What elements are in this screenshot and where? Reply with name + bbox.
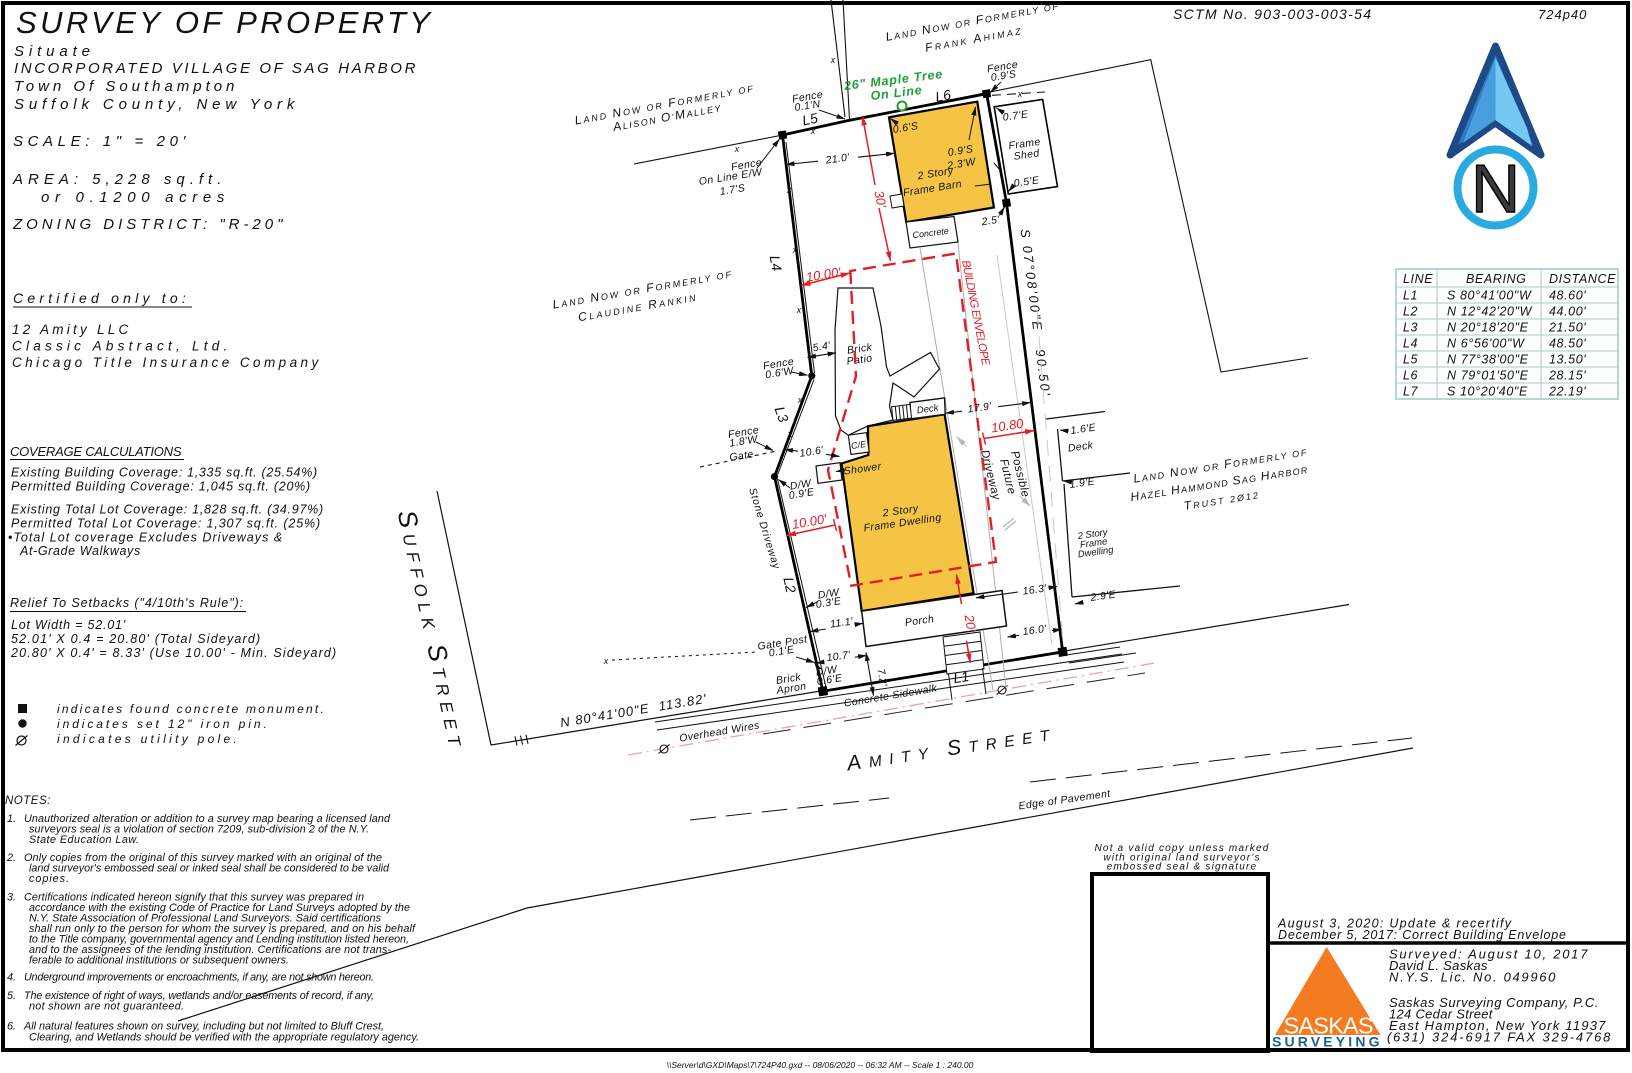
svg-text:x: x (734, 144, 740, 154)
svg-text:22.19': 22.19' (1548, 385, 1586, 399)
svg-text:N 77°38'00"E: N 77°38'00"E (1447, 353, 1529, 367)
svg-text:L6: L6 (934, 86, 953, 105)
svg-text:not shown are not guaranteed.: not shown are not guaranteed. (29, 1001, 184, 1013)
svg-text:N 79°01'50"E: N 79°01'50"E (1447, 369, 1529, 383)
svg-text:48.50': 48.50' (1549, 337, 1586, 351)
svg-text:State Education Law.: State Education Law. (29, 834, 139, 846)
svg-text:11.1': 11.1' (829, 615, 854, 630)
svg-text:3.: 3. (7, 892, 16, 904)
svg-text:•Total Lot coverage Excludes D: •Total Lot coverage Excludes Driveways & (8, 531, 283, 545)
svg-text:Town Of Southampton: Town Of Southampton (14, 78, 237, 95)
svg-text:At-Grade Walkways: At-Grade Walkways (19, 544, 141, 558)
svg-text:20': 20' (961, 613, 979, 634)
svg-text:SUFFOLK STREET: SUFFOLK STREET (392, 507, 474, 753)
svg-text:x: x (796, 305, 802, 315)
svg-text:Driveway: Driveway (978, 449, 1002, 502)
svg-text:Chicago Title Insurance Compan: Chicago Title Insurance Company (12, 355, 320, 370)
svg-text:indicates found concrete monum: indicates found concrete monument. (57, 702, 326, 716)
svg-text:N 80°41'00"E 113.82': N 80°41'00"E 113.82' (559, 691, 707, 730)
svg-text:7.2': 7.2' (874, 668, 889, 688)
svg-text:5.: 5. (7, 990, 16, 1002)
svg-text:(631) 324-6917 FAX 329-4768: (631) 324-6917 FAX 329-4768 (1387, 1030, 1612, 1045)
svg-text:L1: L1 (1403, 289, 1418, 303)
svg-text:Permitted Building Coverage: 1: Permitted Building Coverage: 1,045 sq.ft… (11, 480, 311, 494)
svg-text:indicates set 12" iron pin.: indicates set 12" iron pin. (57, 717, 269, 731)
svg-text:N 6°56'00"W: N 6°56'00"W (1447, 337, 1525, 351)
svg-text:SCALE: 1" = 20': SCALE: 1" = 20' (13, 133, 188, 150)
svg-text:S 07°08'00"E 90.50': S 07°08'00"E 90.50' (1017, 228, 1053, 397)
svg-text:N: N (1471, 151, 1520, 227)
svg-text:0.9'S: 0.9'S (990, 68, 1017, 84)
svg-text:Deck: Deck (1067, 439, 1094, 454)
svg-text:44.00': 44.00' (1549, 305, 1586, 319)
svg-text:indicates utility pole.: indicates utility pole. (57, 732, 239, 746)
svg-text:L6: L6 (1403, 369, 1418, 383)
svg-text:Relief To Setbacks ("4/10th's: Relief To Setbacks ("4/10th's Rule"): (10, 596, 244, 610)
svg-text:52.01' X 0.4 = 20.80' (Total S: 52.01' X 0.4 = 20.80' (Total Sideyard) (11, 632, 261, 646)
svg-text:AMITY STREET: AMITY STREET (844, 722, 1057, 776)
svg-text:Clearing, and Wetlands should: Clearing, and Wetlands should be verifie… (29, 1031, 419, 1043)
svg-text:S 80°41'00"W: S 80°41'00"W (1447, 289, 1532, 303)
svg-text:December 5, 2017: Correct Buil: December 5, 2017: Correct Building Envel… (1278, 928, 1567, 942)
svg-text:Existing Total Lot Coverage: 1: Existing Total Lot Coverage: 1,828 sq.ft… (11, 503, 324, 517)
svg-text:L4: L4 (1403, 337, 1418, 351)
svg-text:L2: L2 (1403, 305, 1418, 319)
svg-text:4.: 4. (7, 972, 16, 984)
svg-text:x: x (792, 245, 798, 255)
svg-text:48.60': 48.60' (1549, 289, 1586, 303)
svg-text:x: x (810, 126, 816, 136)
svg-text:1.7'S: 1.7'S (719, 182, 746, 198)
svg-text:Situate: Situate (14, 43, 93, 60)
svg-text:ferable to additional institut: ferable to additional institutions or su… (29, 955, 289, 967)
svg-text:SCTM No. 903-003-003-54: SCTM No. 903-003-003-54 (1173, 6, 1373, 22)
svg-text:x: x (603, 656, 609, 666)
svg-text:land surveyor's embossed seal: land surveyor's embossed seal or inked s… (29, 863, 390, 875)
svg-text:16.0': 16.0' (1022, 623, 1048, 638)
svg-text:2.: 2. (6, 852, 16, 864)
svg-text:AREA: 5,228 sq.ft.: AREA: 5,228 sq.ft. (12, 171, 224, 188)
svg-text:1.: 1. (7, 813, 16, 825)
svg-text:SURVEYING: SURVEYING (1272, 1034, 1384, 1050)
svg-text:Underground improvements or en: Underground improvements or encroachment… (24, 972, 374, 984)
svg-text:x: x (787, 429, 793, 439)
svg-text:12 Amity LLC: 12 Amity LLC (12, 322, 130, 337)
svg-text:17.9': 17.9' (967, 400, 993, 415)
svg-text:Certified only to:: Certified only to: (13, 290, 188, 306)
svg-text:724p40: 724p40 (1538, 7, 1587, 22)
svg-text:embossed seal & signature: embossed seal & signature (1107, 862, 1258, 873)
svg-text:ZONING DISTRICT: "R-20": ZONING DISTRICT: "R-20" (12, 216, 285, 233)
svg-text:x: x (797, 395, 803, 405)
svg-text:Edge of Pavement: Edge of Pavement (1018, 788, 1112, 813)
svg-text:DISTANCE: DISTANCE (1549, 272, 1616, 286)
svg-text:\\Server\d\GXD\Maps\7\724P40.g: \\Server\d\GXD\Maps\7\724P40.gxd -- 08/0… (667, 1060, 974, 1070)
svg-text:20.80' X 0.4' = 8.33' (Use 10.: 20.80' X 0.4' = 8.33' (Use 10.00' - Min.… (10, 646, 337, 660)
svg-text:Suffolk County, New York: Suffolk County, New York (14, 96, 297, 113)
svg-text:or 0.1200 acres: or 0.1200 acres (41, 189, 227, 206)
svg-text:1.6'E: 1.6'E (1070, 421, 1098, 437)
svg-text:LINE: LINE (1403, 272, 1433, 286)
svg-text:21.50': 21.50' (1548, 321, 1586, 335)
svg-text:INCORPORATED VILLAGE OF SAG HA: INCORPORATED VILLAGE OF SAG HARBOR (14, 60, 418, 77)
svg-text:x: x (786, 185, 792, 195)
svg-text:10.00': 10.00' (791, 511, 829, 532)
svg-text:L7: L7 (1403, 385, 1419, 399)
svg-text:Overhead Wires: Overhead Wires (678, 719, 761, 744)
svg-text:L3: L3 (772, 404, 792, 424)
svg-text:L2: L2 (780, 576, 799, 595)
svg-text:1.9'E: 1.9'E (1069, 475, 1097, 491)
svg-text:2.9'E: 2.9'E (1089, 588, 1118, 604)
svg-text:5.4': 5.4' (812, 340, 832, 355)
svg-text:10.6': 10.6' (799, 444, 825, 460)
svg-text:Existing Building Coverage: 1,: Existing Building Coverage: 1,335 sq.ft.… (11, 466, 318, 480)
svg-text:BUILDING ENVELOPE: BUILDING ENVELOPE (959, 259, 991, 367)
svg-text:30': 30' (871, 189, 889, 209)
svg-text:L4: L4 (767, 254, 785, 272)
svg-text:L1: L1 (952, 668, 970, 686)
svg-text:NOTES:: NOTES: (5, 795, 51, 807)
svg-text:Stone Driveway: Stone Driveway (746, 486, 782, 571)
svg-text:copies.: copies. (29, 873, 69, 885)
svg-text:16.3': 16.3' (1022, 582, 1048, 597)
svg-text:L3: L3 (1403, 321, 1418, 335)
svg-text:BEARING: BEARING (1466, 272, 1526, 286)
svg-text:N 20°18'20"E: N 20°18'20"E (1447, 321, 1529, 335)
svg-text:S 10°20'40"E: S 10°20'40"E (1447, 385, 1528, 399)
svg-text:COVERAGE CALCULATIONS: COVERAGE CALCULATIONS (10, 444, 183, 459)
svg-text:N 12°42'20"W: N 12°42'20"W (1447, 305, 1533, 319)
svg-text:13.50': 13.50' (1549, 353, 1586, 367)
svg-text:SURVEY OF PROPERTY: SURVEY OF PROPERTY (16, 5, 438, 40)
svg-text:2.5': 2.5' (980, 214, 1001, 229)
svg-text:10.7': 10.7' (826, 649, 852, 664)
svg-text:Classic Abstract, Ltd.: Classic Abstract, Ltd. (12, 339, 229, 354)
svg-text:x: x (830, 55, 836, 65)
svg-text:21.0': 21.0' (824, 151, 851, 166)
svg-text:Permitted Total Lot Coverage:: Permitted Total Lot Coverage: 1,307 sq.f… (11, 517, 321, 531)
svg-text:x: x (1017, 89, 1023, 99)
svg-text:N.Y.S. Lic. No. 049960: N.Y.S. Lic. No. 049960 (1389, 970, 1557, 985)
svg-text:L5: L5 (1403, 353, 1418, 367)
svg-text:Lot Width = 52.01': Lot Width = 52.01' (11, 618, 126, 632)
svg-text:10.00': 10.00' (805, 264, 842, 284)
svg-text:6.: 6. (7, 1021, 16, 1033)
svg-text:28.15': 28.15' (1548, 369, 1586, 383)
